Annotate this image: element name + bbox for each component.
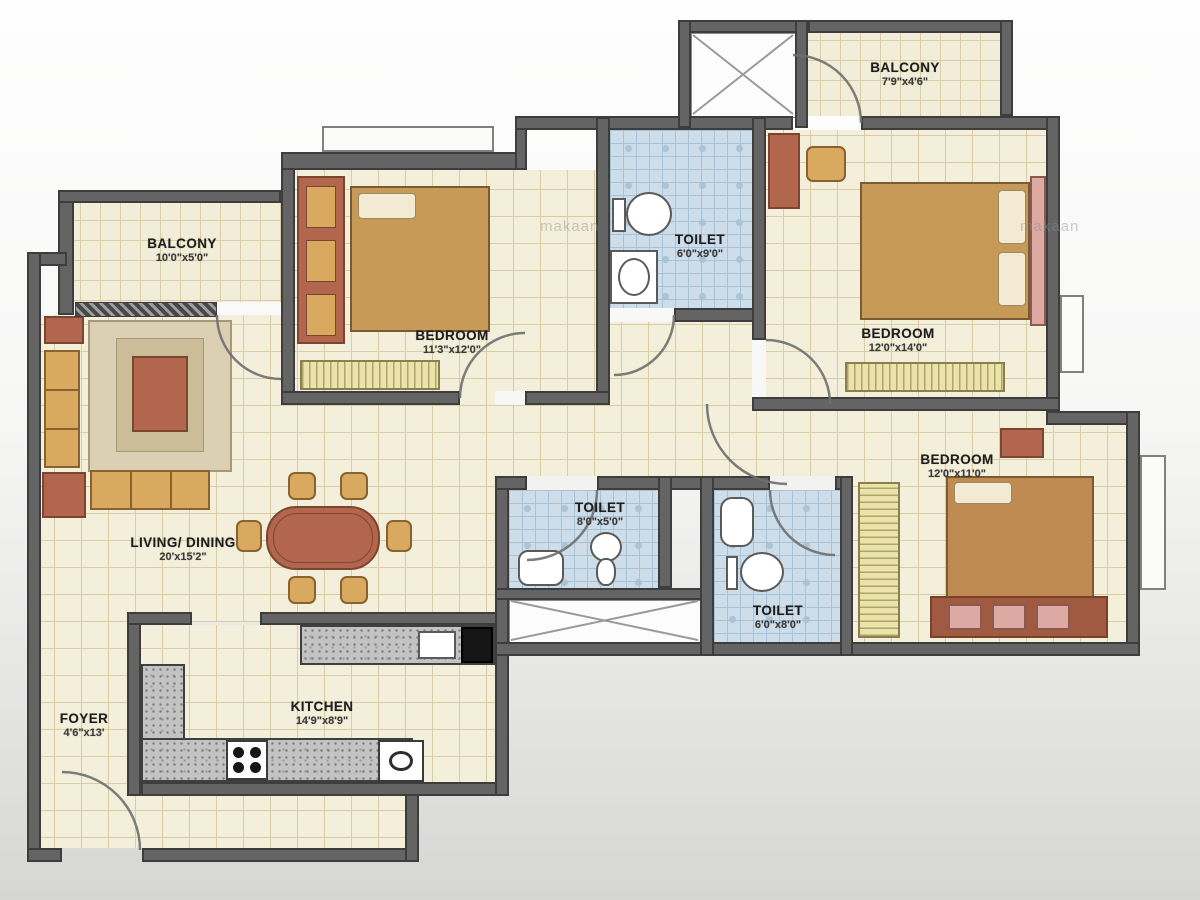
foot-slat (1036, 604, 1070, 630)
wall-segment (840, 476, 853, 656)
wall-segment (752, 397, 1060, 411)
wall-segment (700, 476, 714, 656)
wall-segment (260, 612, 509, 625)
foot-slat (992, 604, 1026, 630)
wall-segment (127, 612, 141, 796)
wc-bowl (626, 192, 672, 236)
dining-chair (288, 576, 316, 604)
armchair (44, 316, 84, 344)
dining-table (266, 506, 380, 570)
window (322, 126, 494, 152)
wall-segment (525, 391, 610, 405)
room-label-balcony-left: BALCONY10'0"x5'0" (147, 236, 217, 264)
dining-chair (340, 472, 368, 500)
washbasin (518, 550, 564, 586)
wc-tank (612, 198, 626, 232)
sofa-left (44, 350, 80, 468)
duct-top (691, 33, 797, 118)
armchair (42, 472, 86, 518)
room-label-foyer: FOYER4'6"x13' (60, 711, 109, 739)
wall-segment (495, 476, 509, 796)
pillow (358, 193, 416, 219)
window (1060, 295, 1084, 373)
oven (378, 740, 424, 782)
wc-tank (726, 556, 738, 590)
corridor-floor (495, 405, 853, 476)
headboard (1030, 176, 1046, 326)
wall-segment (27, 252, 41, 862)
pillow (998, 252, 1026, 306)
wall-segment (795, 20, 808, 128)
wall-segment (27, 848, 62, 862)
room-label-toilet2: TOILET8'0"x5'0" (575, 500, 625, 528)
wall-segment (281, 391, 460, 405)
dresser (768, 133, 800, 209)
wc-bowl (596, 558, 616, 586)
duct-mid (509, 600, 702, 644)
wall-segment (281, 152, 295, 405)
room-label-bedroom1: BEDROOM11'3"x12'0" (415, 328, 488, 356)
wall-segment (141, 782, 509, 796)
washbasin (720, 497, 754, 547)
wall-segment (678, 20, 691, 128)
room-label-toilet1: TOILET6'0"x9'0" (675, 232, 725, 260)
wall-segment (1000, 20, 1013, 116)
kitchen-hob-black (461, 627, 493, 663)
wall-segment (658, 476, 672, 588)
washbasin-bowl (618, 258, 650, 296)
wall-segment (597, 476, 770, 490)
watermark-text: makaan (1020, 218, 1079, 235)
chair (806, 146, 846, 182)
room-label-balcony-top: BALCONY7'9"x4'6" (870, 60, 940, 88)
bench (300, 360, 440, 390)
wall-segment (752, 117, 766, 340)
wall-segment (58, 190, 281, 203)
wall-segment (405, 790, 419, 862)
sofa-bottom (90, 470, 210, 510)
dining-chair (236, 520, 262, 552)
room-label-toilet3: TOILET6'0"x8'0" (753, 603, 803, 631)
watermark-text: makaan (540, 218, 599, 235)
dining-chair (288, 472, 316, 500)
wall-segment (1126, 411, 1140, 656)
wc-bowl (740, 552, 784, 592)
wall-segment (596, 117, 610, 405)
foot-slat (948, 604, 982, 630)
room-label-living-dining: LIVING/ DINING20'x15'2" (130, 535, 235, 563)
pillow (954, 482, 1012, 504)
wardrobe (858, 482, 900, 638)
window (1140, 455, 1166, 590)
kitchen-counter-bottom (141, 738, 413, 782)
bench (845, 362, 1005, 392)
wall-segment (1046, 116, 1060, 411)
floor-plan: BALCONY10'0"x5'0" BEDROOM11'3"x12'0" TOI… (0, 0, 1200, 900)
wall-segment (495, 588, 714, 600)
rug-center (132, 356, 188, 432)
pillow (998, 190, 1026, 244)
wall-segment (808, 20, 1013, 33)
wall-segment (281, 152, 527, 170)
passage-floor (610, 322, 752, 405)
wall-segment (861, 116, 1060, 130)
room-label-bedroom3: BEDROOM12'0"x11'0" (920, 452, 993, 480)
room-label-bedroom2: BEDROOM12'0"x14'0" (861, 326, 934, 354)
kitchen-sink (418, 631, 456, 659)
dresser (1000, 428, 1044, 458)
dining-chair (386, 520, 412, 552)
wall-segment (142, 848, 419, 862)
dining-chair (340, 576, 368, 604)
wall-segment (495, 642, 1140, 656)
wall-segment (127, 612, 192, 625)
wall-segment (495, 476, 527, 490)
wardrobe (297, 176, 345, 344)
sliding-door (75, 302, 217, 317)
stove (226, 740, 268, 780)
wall-segment (678, 20, 808, 33)
room-label-kitchen: KITCHEN14'9"x8'9" (291, 699, 354, 727)
entry-floor (41, 796, 405, 848)
